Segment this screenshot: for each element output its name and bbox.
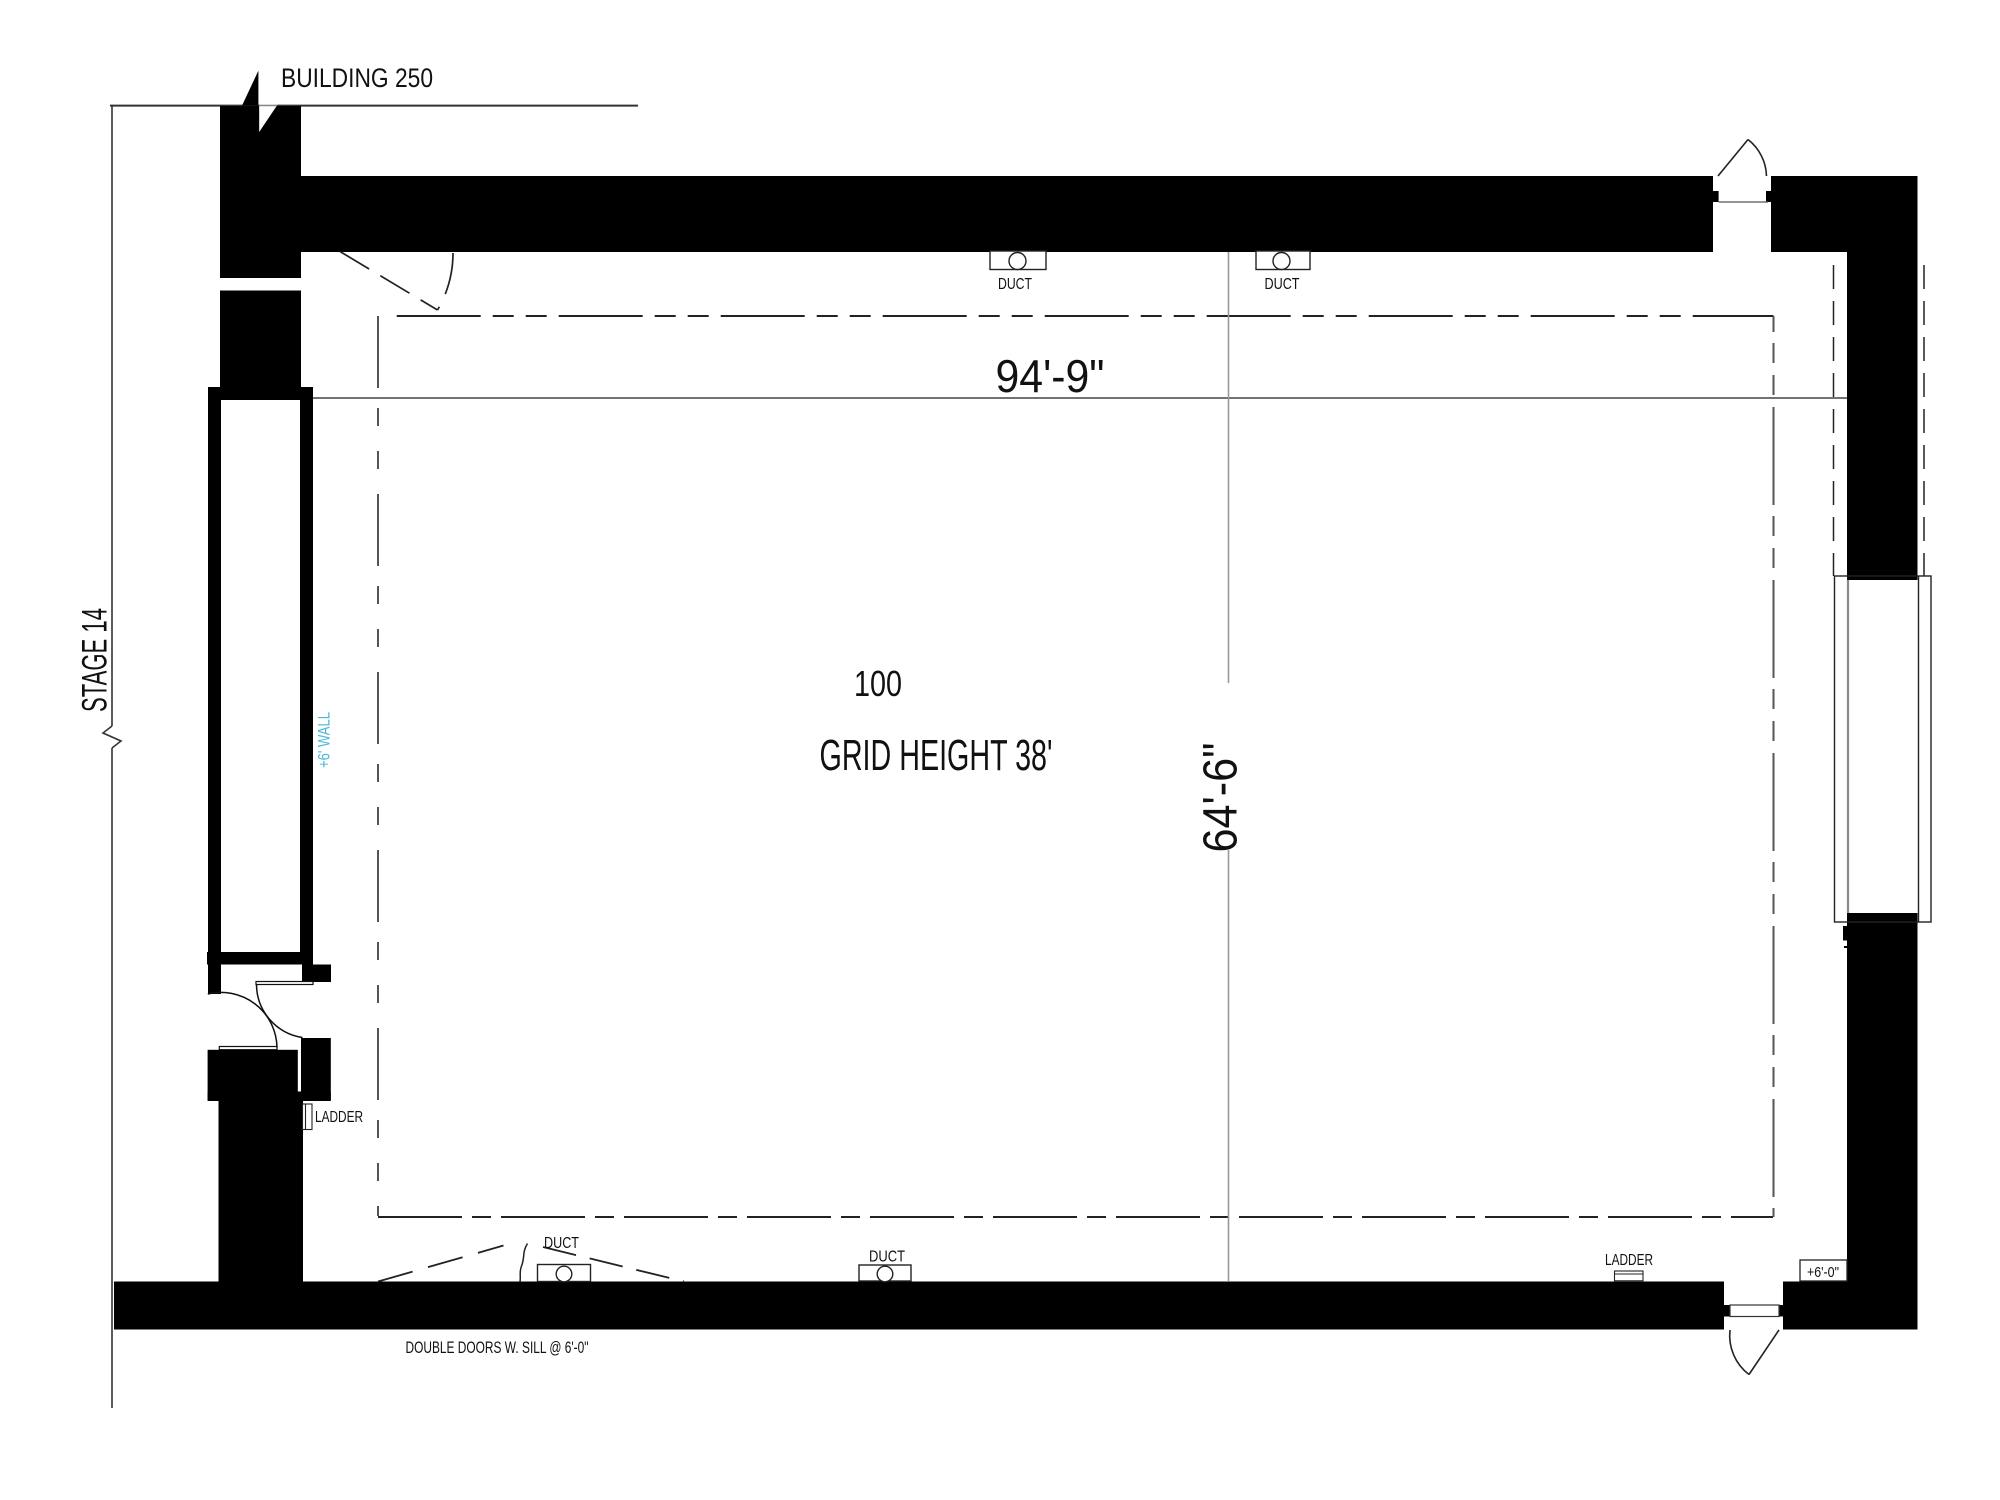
svg-text:GRID HEIGHT 38': GRID HEIGHT 38'	[820, 731, 1053, 780]
svg-text:DUCT: DUCT	[544, 1235, 579, 1252]
svg-text:LADDER: LADDER	[315, 1109, 363, 1126]
svg-text:BUILDING 250: BUILDING 250	[281, 63, 433, 93]
svg-text:+6'-0": +6'-0"	[1807, 1264, 1839, 1281]
svg-text:DUCT: DUCT	[998, 276, 1032, 293]
svg-text:LADDER: LADDER	[1605, 1252, 1653, 1269]
svg-text:+6' WALL: +6' WALL	[316, 712, 334, 768]
svg-text:94'-9": 94'-9"	[996, 350, 1105, 402]
svg-text:100: 100	[854, 663, 902, 704]
svg-text:DUCT: DUCT	[1265, 276, 1300, 293]
svg-text:DOUBLE DOORS W. SILL @ 6'-0": DOUBLE DOORS W. SILL @ 6'-0"	[406, 1339, 589, 1357]
svg-text:DUCT: DUCT	[869, 1249, 905, 1266]
svg-text:64'-6": 64'-6"	[1195, 743, 1248, 853]
svg-text:STAGE 14: STAGE 14	[76, 608, 115, 712]
